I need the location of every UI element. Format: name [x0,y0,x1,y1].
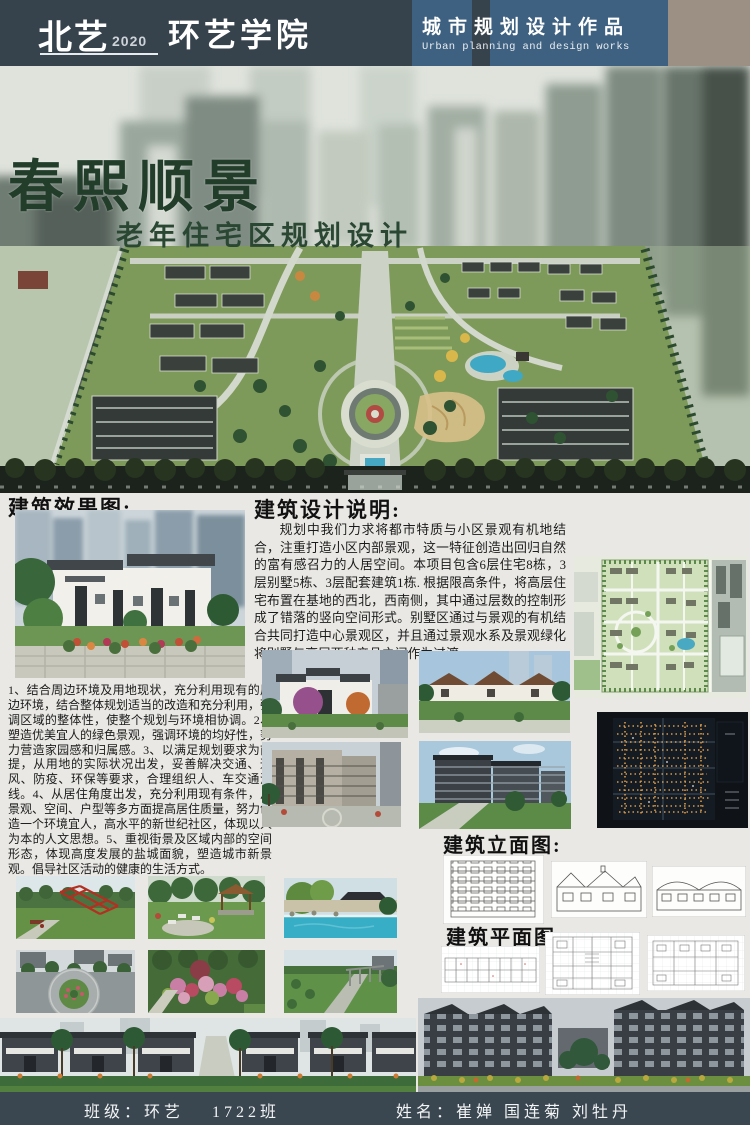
landscape-red-pergola-rendering [16,876,135,939]
hero-aerial-rendering: 春熙顺景 老年住宅区规划设计 [0,66,750,493]
panorama-villa-street-rendering [0,1018,416,1092]
main-villa-rendering [15,510,245,678]
landscape-pool-pavilion-rendering [284,878,397,938]
design-points-text: 1、结合周边环境及用地现状，充分利用现有的周边环境，结合整体规划适当的改造和充分… [8,683,272,876]
elevation-drawing-3 [652,866,746,917]
poster-title: 春熙顺景 [8,142,268,223]
landscape-roundabout-rendering [16,950,135,1013]
floor-plan-drawing-1 [441,946,540,993]
header-tan-block [668,0,750,70]
villa-courtyard-rendering [262,650,408,738]
villa-street-rendering [419,651,570,733]
elevation-drawing-1 [443,855,544,924]
school-name: 环艺学院 [168,10,312,56]
brand-logo: 北艺 [38,10,110,59]
apartment-daytime-rendering [262,742,401,827]
brand-underline [40,53,158,55]
category-panel: 城市规划设计作品 Urban planning and design works [412,0,668,66]
landscape-flower-garden-rendering [148,950,265,1013]
night-lighting-plan [597,712,748,828]
site-plan-rendering [574,556,748,698]
category-subtitle-en: Urban planning and design works [422,41,666,53]
landscape-park-walkway-rendering [284,950,397,1013]
hero-aerial-art [0,66,750,493]
floor-plan-drawing-2 [545,932,640,995]
header-bar: 北艺 2020 环艺学院 城市规划设计作品 Urban planning and… [0,0,750,66]
brand-year: 2020 [112,33,147,49]
category-title-cn: 城市规划设计作品 [422,12,662,39]
apartment-block-rendering [419,741,571,829]
footer-bar: 班级：环艺 1722班 姓名：崔婵 国连菊 刘牡丹 [0,1092,750,1125]
poster: 北艺 2020 环艺学院 城市规划设计作品 Urban planning and… [0,0,750,1125]
floor-plan-drawing-3 [647,935,745,991]
description-text: 规划中我们力求将都市特质与小区景观有机地结合，注重打造小区内部景观，这一特征创造… [254,523,566,661]
class-info: 班级：环艺 1722班 [84,1098,280,1122]
elevations-heading: 建筑立面图: [443,829,562,858]
panorama-apartment-street-rendering [418,998,750,1092]
description-heading: 建筑设计说明: [254,494,401,524]
landscape-garden-gazebo-rendering [148,876,265,939]
names-info: 姓名：崔婵 国连菊 刘牡丹 [396,1098,632,1122]
elevation-drawing-2 [551,861,647,918]
poster-subtitle: 老年住宅区规划设计 [116,214,413,253]
